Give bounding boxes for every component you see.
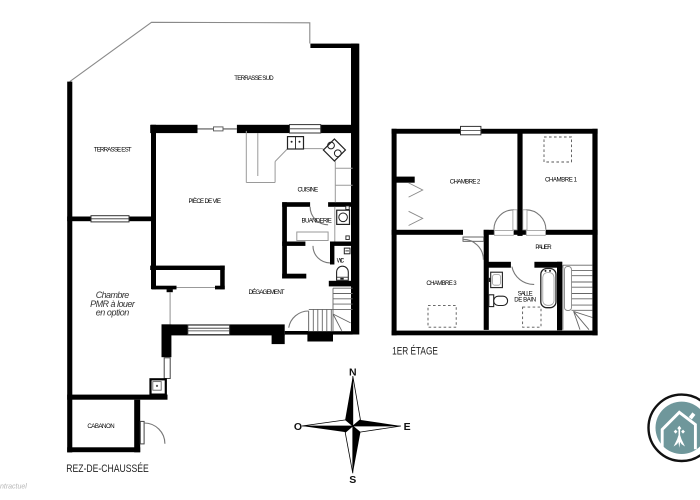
svg-text:S: S: [349, 474, 356, 486]
svg-text:N: N: [349, 366, 357, 378]
svg-text:DÉGAGEMENT: DÉGAGEMENT: [249, 289, 285, 296]
svg-text:en option: en option: [96, 307, 130, 317]
svg-text:WC: WC: [337, 257, 345, 264]
svg-text:REZ-DE-CHAUSSÉE: REZ-DE-CHAUSSÉE: [66, 462, 149, 475]
svg-text:CHAMBRE 2: CHAMBRE 2: [450, 179, 481, 186]
svg-text:1ER ÉTAGE: 1ER ÉTAGE: [392, 345, 438, 358]
svg-text:DE BAIN: DE BAIN: [514, 296, 536, 303]
svg-text:TERRASSE SUD: TERRASSE SUD: [234, 75, 274, 82]
svg-text:CHAMBRE 3: CHAMBRE 3: [426, 280, 457, 287]
svg-text:PALIER: PALIER: [535, 244, 552, 251]
svg-text:TERRASSE EST: TERRASSE EST: [94, 147, 132, 154]
svg-text:E: E: [404, 421, 411, 433]
svg-text:CHAMBRE 1: CHAMBRE 1: [545, 177, 578, 184]
svg-text:CUISINE: CUISINE: [297, 187, 318, 194]
svg-text:CABANON: CABANON: [87, 423, 114, 430]
svg-text:BUANDERIE: BUANDERIE: [302, 218, 332, 225]
svg-text:PIÈCE DE VIE: PIÈCE DE VIE: [189, 198, 222, 205]
svg-text:ntractuel: ntractuel: [0, 484, 27, 491]
svg-text:O: O: [294, 421, 302, 433]
